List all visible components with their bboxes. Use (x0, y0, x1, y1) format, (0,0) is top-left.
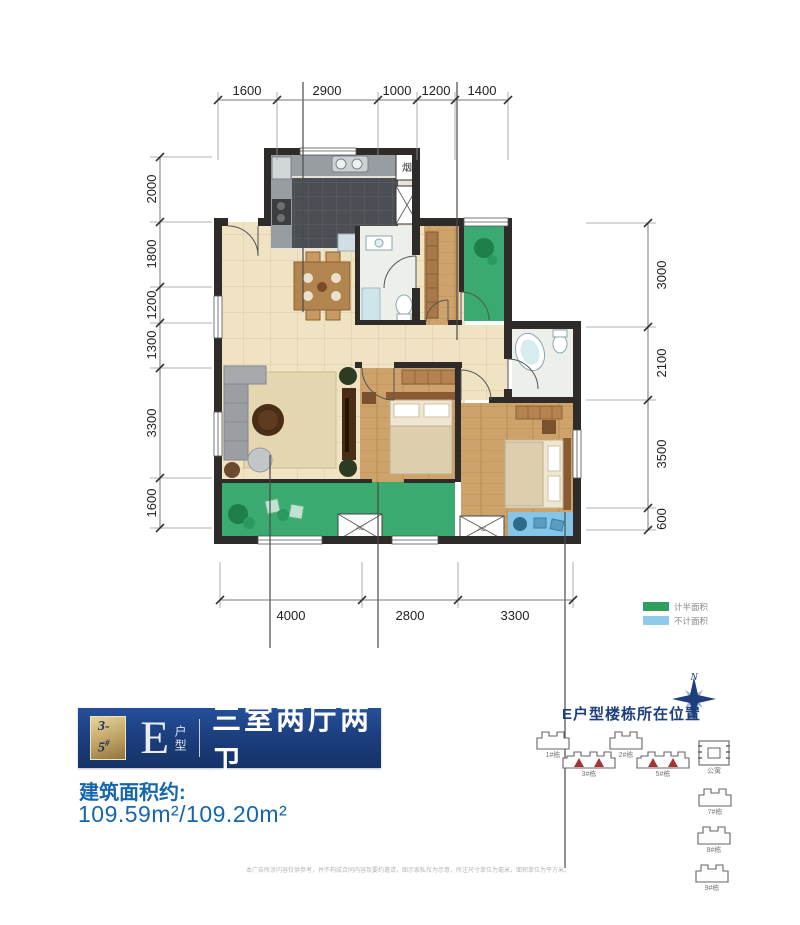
flue-label: 烟 (402, 161, 412, 174)
dim-top-4: 1200 (422, 83, 451, 98)
hall-floor (465, 325, 508, 400)
building-range-badge: 3-5# (90, 716, 126, 760)
area-value: 109.59m²/109.20m² (78, 801, 287, 828)
dim-left-5: 3300 (144, 409, 159, 438)
legend-label-blue: 不计面积 (674, 616, 709, 626)
dimension-left: 2000 1800 1200 1300 3300 1600 (144, 153, 212, 532)
banner-divider (199, 719, 200, 757)
ac-label: AC (356, 526, 365, 532)
dim-left-1: 2000 (144, 175, 159, 204)
legend: 计半面积 不计面积 (643, 602, 709, 626)
building-7-label: 7#栋 (708, 807, 723, 816)
building-9-label: 9#栋 (705, 883, 720, 892)
unit-name: 三室两厅两卫 (212, 696, 381, 780)
dim-left-3: 1200 (144, 291, 159, 320)
building-8-label: 8#栋 (707, 845, 722, 854)
building-3-label: 3#栋 (582, 769, 597, 778)
building-2: 2#栋 (610, 732, 642, 759)
bedroom3-wardrobe (426, 232, 438, 318)
dim-left-2: 1800 (144, 240, 159, 269)
building-3-highlighted: 3#栋 (563, 752, 615, 778)
building-2-label: 2#栋 (619, 750, 634, 759)
building-5-label: 5#栋 (656, 769, 671, 778)
building-9: 9#栋 (696, 865, 728, 892)
building-apartment: 公寓 (698, 741, 730, 775)
dim-top-2: 2900 (313, 83, 342, 98)
legend-swatch-green (643, 602, 669, 611)
unit-title-banner: 3-5# E 户型 三室两厅两卫 (78, 708, 381, 768)
dim-top-5: 1400 (468, 83, 497, 98)
building-7: 7#栋 (699, 789, 731, 816)
building-8: 8#栋 (698, 827, 730, 854)
dim-left-6: 1600 (144, 489, 159, 518)
dim-right-2: 2100 (654, 349, 669, 378)
dim-bottom-3: 3300 (501, 608, 530, 623)
legend-label-green: 计半面积 (674, 602, 709, 612)
dim-left-4: 1300 (144, 331, 159, 360)
unit-letter: E (140, 712, 169, 764)
location-map-title: E户型楼栋所在位置 (562, 703, 701, 724)
dim-top-3: 1000 (383, 83, 412, 98)
building-1-label: 1#栋 (546, 750, 561, 759)
building-apartment-label: 公寓 (707, 766, 721, 775)
building-5-highlighted: 5#栋 (637, 752, 689, 778)
unit-label: 户型 (174, 725, 186, 755)
building-1: 1#栋 (537, 732, 569, 759)
dim-top-1: 1600 (233, 83, 262, 98)
dim-bottom-2: 2800 (396, 608, 425, 623)
dim-right-4: 600 (654, 508, 669, 530)
dim-right-3: 3500 (654, 440, 669, 469)
dim-bottom-1: 4000 (277, 608, 306, 623)
legend-swatch-blue (643, 616, 669, 625)
dimension-right: 3000 2100 3500 600 (586, 219, 669, 534)
ac-label: AC (478, 527, 487, 533)
disclaimer-text: 本广告所涉内容仅供参考，并不构成合同内容及要约邀请，图示家私仅为示意，所注尺寸单… (246, 865, 534, 874)
dim-right-1: 3000 (654, 261, 669, 290)
badge-hash: # (105, 738, 110, 748)
